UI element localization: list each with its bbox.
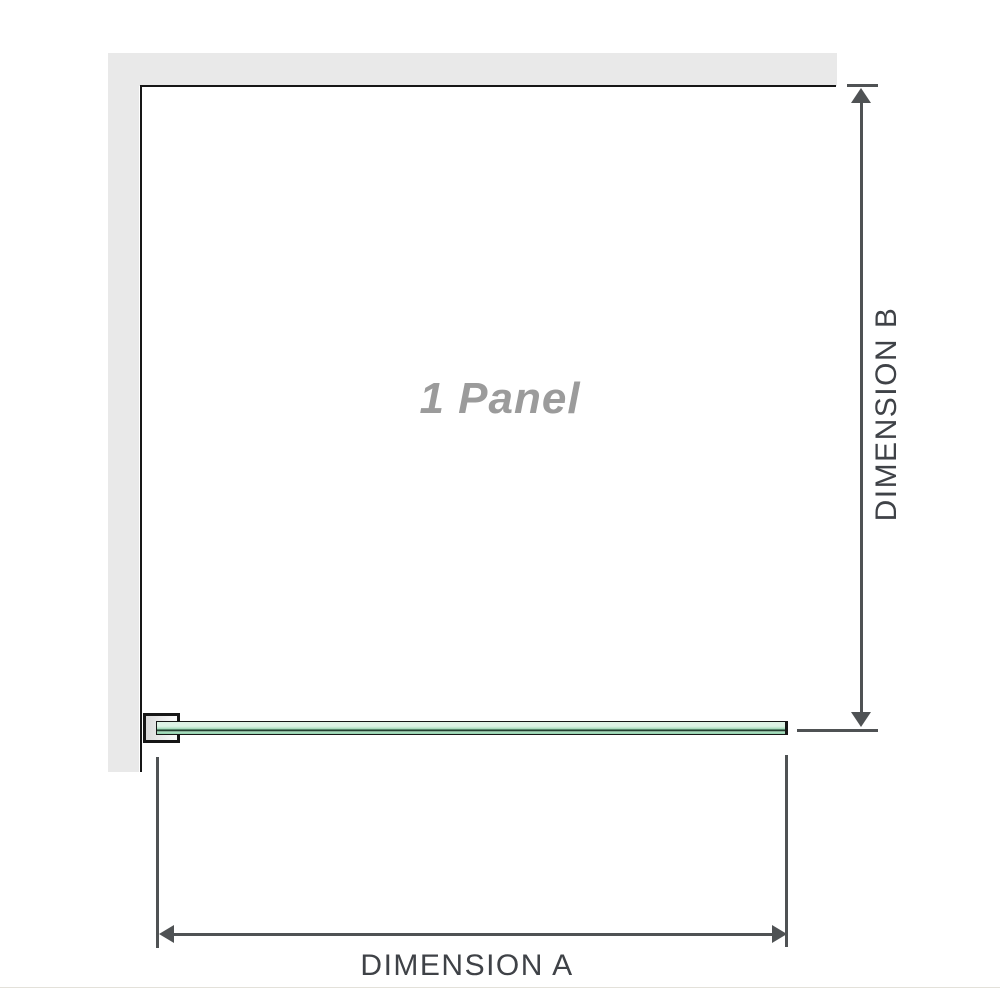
panel-count-label: 1 Panel (419, 374, 580, 424)
wall-left-strip (108, 53, 139, 772)
dimension-b-tick-bottom (797, 729, 878, 732)
panel-outline-left (140, 85, 142, 772)
arrow-down-icon (851, 712, 871, 727)
dimension-a-extension-left (156, 757, 159, 948)
footer-rule (0, 987, 1000, 988)
dimension-b-label: DIMENSION B (870, 307, 904, 522)
dimension-a-extension-right (785, 755, 788, 947)
dimension-b-line (860, 97, 863, 718)
glass-panel-bar (156, 721, 788, 735)
arrow-up-icon (851, 88, 871, 103)
dimension-a-label: DIMENSION A (360, 949, 573, 983)
diagram-canvas: 1 Panel DIMENSION B DIMENSION A (0, 0, 1000, 1000)
dimension-b-tick-top (847, 84, 878, 87)
arrow-left-icon (159, 925, 174, 943)
dimension-a-line (168, 933, 778, 936)
arrow-right-icon (772, 925, 787, 943)
wall-top-strip (108, 53, 837, 86)
panel-outline-top (140, 85, 836, 87)
